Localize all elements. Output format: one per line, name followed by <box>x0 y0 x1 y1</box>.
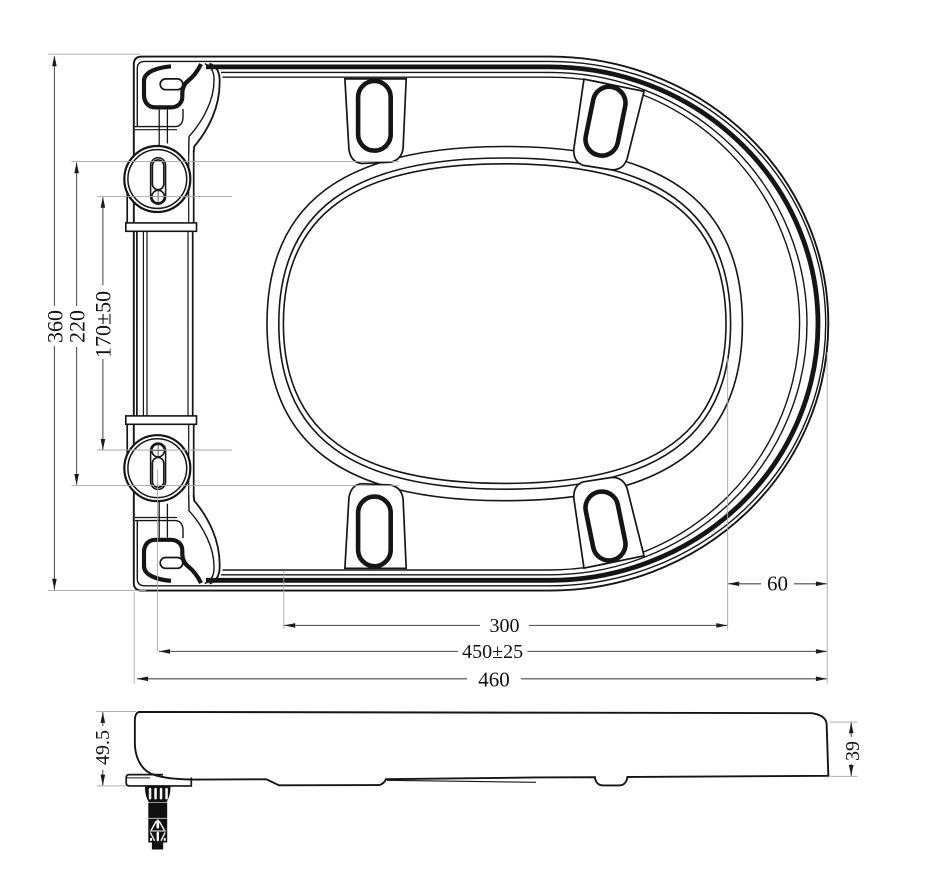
svg-text:450±25: 450±25 <box>462 641 523 663</box>
svg-text:60: 60 <box>767 572 788 596</box>
svg-text:220: 220 <box>65 310 90 343</box>
svg-text:460: 460 <box>478 667 510 691</box>
svg-text:39: 39 <box>842 741 864 761</box>
svg-text:170±50: 170±50 <box>91 291 116 358</box>
svg-text:49.5: 49.5 <box>92 730 114 765</box>
svg-text:300: 300 <box>490 615 520 637</box>
